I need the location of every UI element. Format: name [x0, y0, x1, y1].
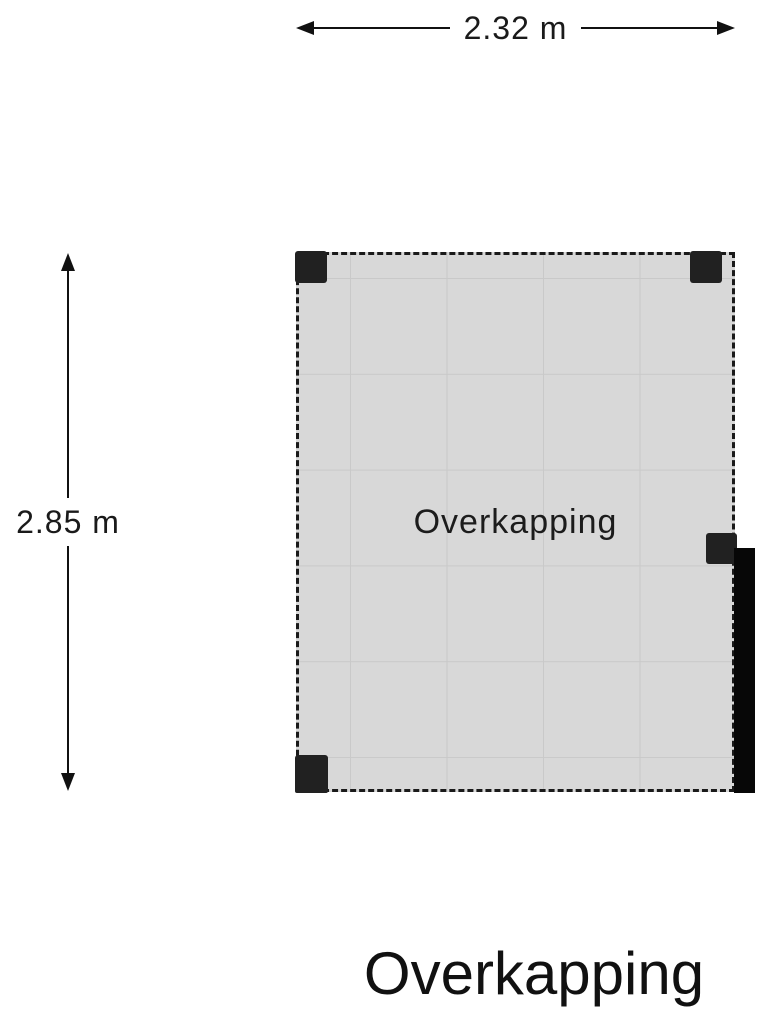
- room-label: Overkapping: [414, 505, 618, 539]
- dimension-line: [67, 546, 69, 773]
- wall-segment: [734, 548, 755, 793]
- overkapping-floor-area: Overkapping: [296, 252, 735, 792]
- post-top-right: [690, 251, 722, 283]
- dimension-line: [314, 27, 450, 29]
- height-dimension-label: 2.85 m: [16, 498, 120, 546]
- floorplan-canvas: 2.32 m 2.85 m Overkapping Overkapping: [0, 0, 768, 1024]
- width-dimension-label: 2.32 m: [450, 12, 582, 44]
- width-dimension: 2.32 m: [296, 13, 735, 43]
- arrowhead-right-icon: [717, 21, 735, 35]
- height-dimension: 2.85 m: [54, 253, 82, 791]
- page-title: Overkapping: [364, 941, 704, 1007]
- dimension-line: [67, 271, 69, 498]
- arrowhead-down-icon: [61, 773, 75, 791]
- post-middle-right: [706, 533, 737, 564]
- post-bottom-left: [295, 755, 328, 793]
- post-top-left: [295, 251, 327, 283]
- dimension-line: [581, 27, 717, 29]
- arrowhead-left-icon: [296, 21, 314, 35]
- arrowhead-up-icon: [61, 253, 75, 271]
